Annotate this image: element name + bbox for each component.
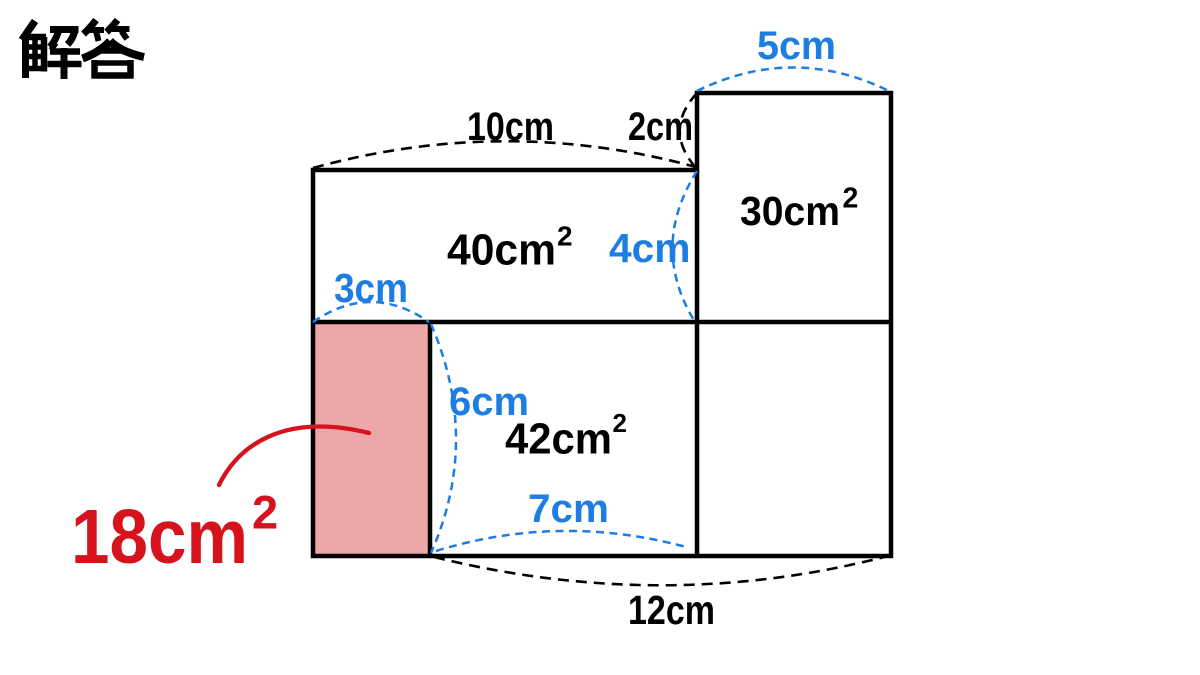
svg-text:10cm: 10cm	[467, 105, 554, 149]
svg-text:42cm: 42cm	[505, 415, 612, 464]
svg-text:40cm: 40cm	[447, 226, 556, 275]
svg-text:2: 2	[613, 408, 627, 438]
svg-text:30cm: 30cm	[740, 188, 840, 234]
svg-text:4cm: 4cm	[609, 225, 691, 271]
svg-text:3cm: 3cm	[334, 265, 408, 311]
svg-text:2: 2	[843, 183, 859, 215]
svg-text:5cm: 5cm	[757, 24, 836, 68]
svg-text:12cm: 12cm	[628, 587, 715, 633]
svg-text:2cm: 2cm	[628, 105, 693, 149]
svg-text:18cm: 18cm	[71, 494, 248, 580]
svg-text:7cm: 7cm	[528, 487, 609, 531]
svg-text:2: 2	[557, 221, 573, 252]
svg-text:2: 2	[252, 486, 278, 539]
